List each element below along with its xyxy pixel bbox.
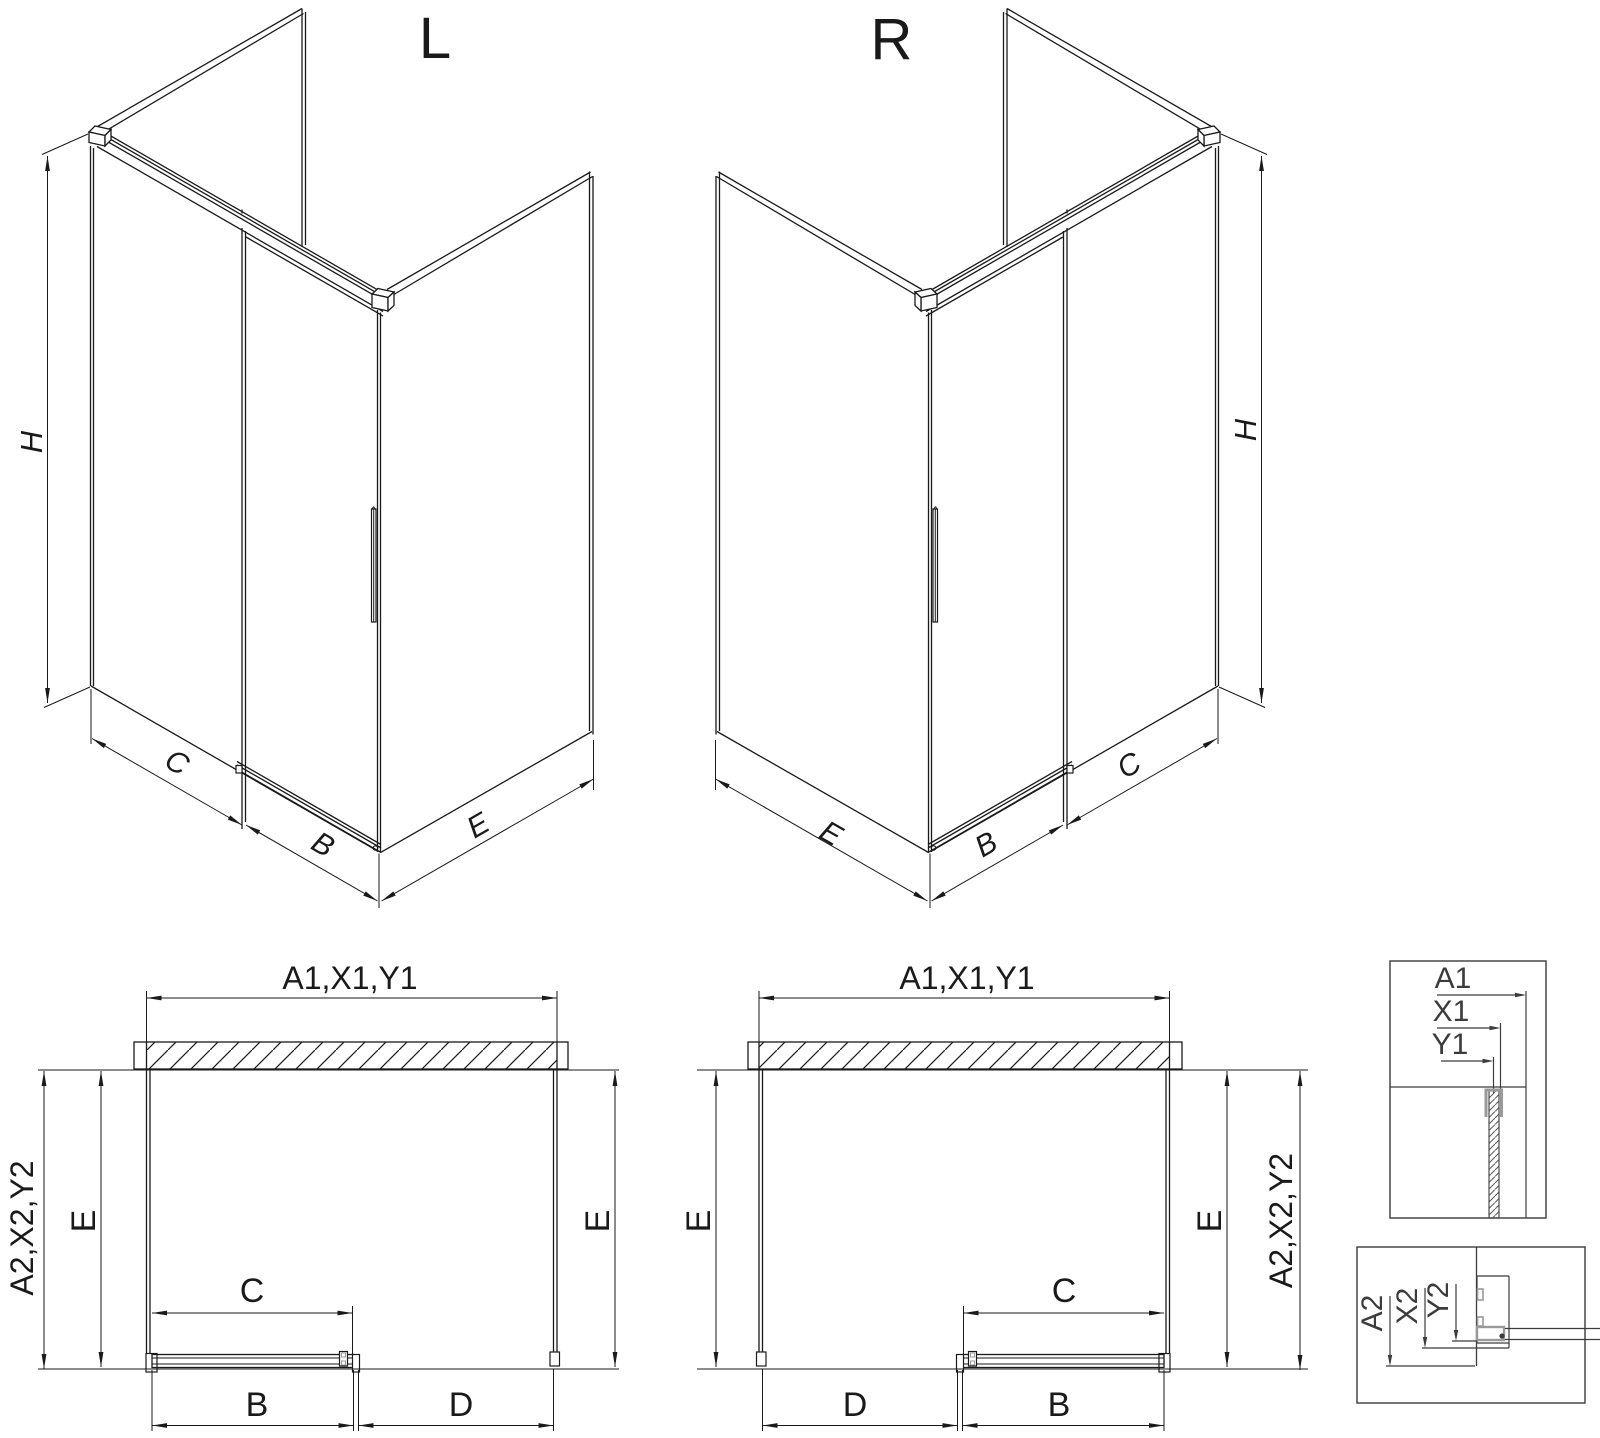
svg-text:E: E — [1191, 1210, 1229, 1233]
svg-text:A1,X1,Y1: A1,X1,Y1 — [899, 960, 1034, 996]
svg-text:X2: X2 — [1391, 1288, 1424, 1325]
svg-text:C: C — [240, 1272, 265, 1310]
svg-text:D: D — [843, 1386, 868, 1424]
svg-text:A2: A2 — [1356, 1295, 1389, 1332]
svg-text:Y2: Y2 — [1422, 1282, 1455, 1319]
svg-text:Y1: Y1 — [1432, 1028, 1469, 1061]
svg-text:X1: X1 — [1433, 995, 1470, 1028]
svg-text:E: E — [579, 1210, 617, 1233]
svg-text:D: D — [449, 1386, 474, 1424]
svg-text:A2,X2,Y2: A2,X2,Y2 — [1263, 1153, 1299, 1288]
svg-text:E: E — [65, 1210, 103, 1233]
svg-text:B: B — [1048, 1386, 1071, 1424]
svg-text:L: L — [419, 6, 451, 71]
svg-text:H: H — [1228, 418, 1263, 441]
svg-text:E: E — [680, 1210, 718, 1233]
svg-text:A1: A1 — [1435, 962, 1472, 995]
svg-text:A2,X2,Y2: A2,X2,Y2 — [4, 1160, 40, 1295]
svg-text:B: B — [246, 1386, 269, 1424]
svg-text:R: R — [871, 7, 913, 72]
svg-text:H: H — [14, 430, 49, 453]
svg-text:C: C — [1052, 1272, 1077, 1310]
svg-text:A1,X1,Y1: A1,X1,Y1 — [282, 960, 417, 996]
